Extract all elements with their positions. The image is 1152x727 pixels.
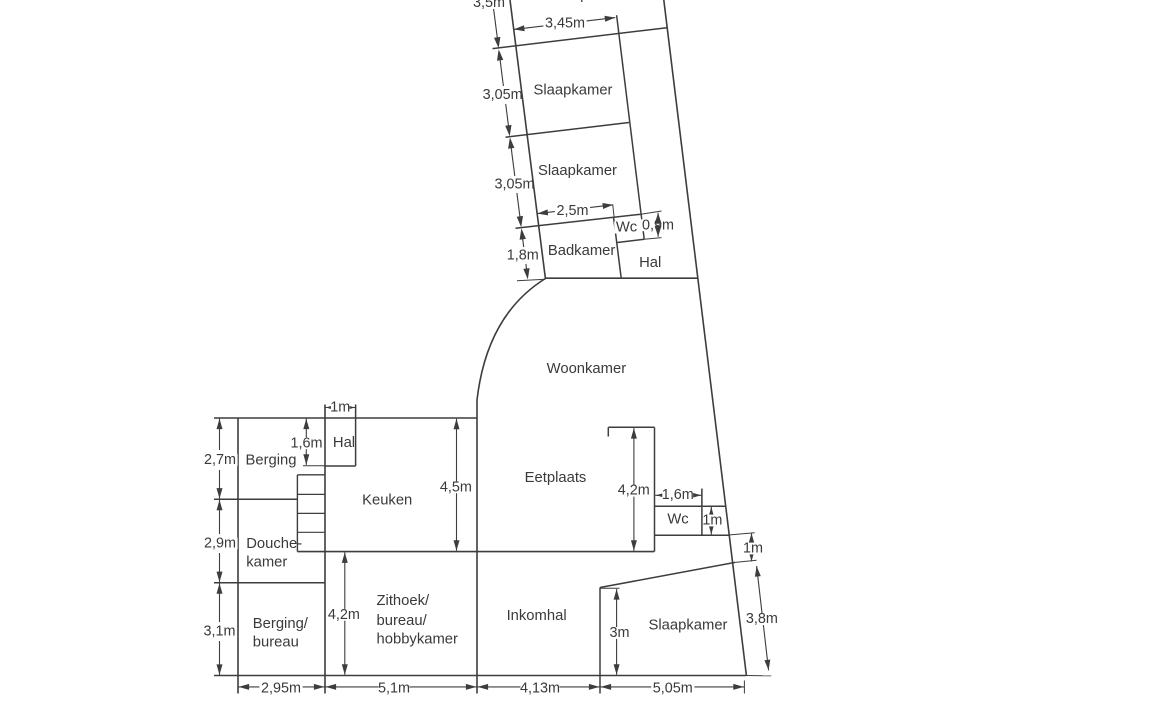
svg-text:3,5m: 3,5m [473,0,505,11]
svg-text:2,7m: 2,7m [204,452,236,468]
svg-text:Slaapkamer: Slaapkamer [649,617,728,633]
svg-text:5,05m: 5,05m [653,681,693,697]
svg-text:3m: 3m [610,625,630,641]
svg-text:Douche-: Douche- [246,536,302,552]
svg-text:Keuken: Keuken [362,493,412,509]
svg-text:1m: 1m [330,400,350,416]
svg-text:4,2m: 4,2m [618,483,650,499]
svg-text:1m: 1m [702,513,722,529]
svg-text:3,8m: 3,8m [746,611,778,627]
svg-text:Slaapkamer: Slaapkamer [538,163,617,179]
svg-text:Slaapkamer: Slaapkamer [551,0,630,3]
svg-text:bureau/: bureau/ [377,613,428,629]
svg-text:Wc: Wc [667,512,689,528]
svg-text:5,1m: 5,1m [378,681,410,697]
svg-text:Hal: Hal [639,255,661,271]
svg-text:2,5m: 2,5m [557,203,589,219]
svg-text:2,95m: 2,95m [261,681,301,697]
svg-text:4,5m: 4,5m [440,479,472,495]
svg-text:Wc: Wc [616,220,638,236]
svg-text:3,1m: 3,1m [204,623,236,639]
svg-text:3,05m: 3,05m [495,177,535,193]
svg-text:1,8m: 1,8m [507,248,539,264]
svg-text:Slaapkamer: Slaapkamer [534,83,613,99]
svg-text:bureau: bureau [253,635,299,651]
svg-text:2,9m: 2,9m [204,536,236,552]
svg-text:Woonkamer: Woonkamer [547,361,627,377]
svg-text:Inkomhal: Inkomhal [507,608,567,624]
svg-text:3,05m: 3,05m [483,87,523,103]
svg-text:4,2m: 4,2m [328,607,360,623]
svg-text:1,6m: 1,6m [662,487,694,503]
svg-text:1m: 1m [743,541,763,557]
svg-text:hobbykamer: hobbykamer [377,632,458,648]
svg-text:Berging: Berging [245,453,296,469]
svg-text:Eetplaats: Eetplaats [525,470,587,486]
svg-text:1,6m: 1,6m [291,435,323,451]
svg-text:Badkamer: Badkamer [548,243,616,259]
svg-text:Zithoek/: Zithoek/ [377,593,431,609]
svg-text:Berging/: Berging/ [253,616,309,632]
svg-text:Hal: Hal [333,435,355,451]
svg-text:3,45m: 3,45m [545,16,585,32]
svg-text:kamer: kamer [246,555,287,571]
svg-text:4,13m: 4,13m [520,681,560,697]
